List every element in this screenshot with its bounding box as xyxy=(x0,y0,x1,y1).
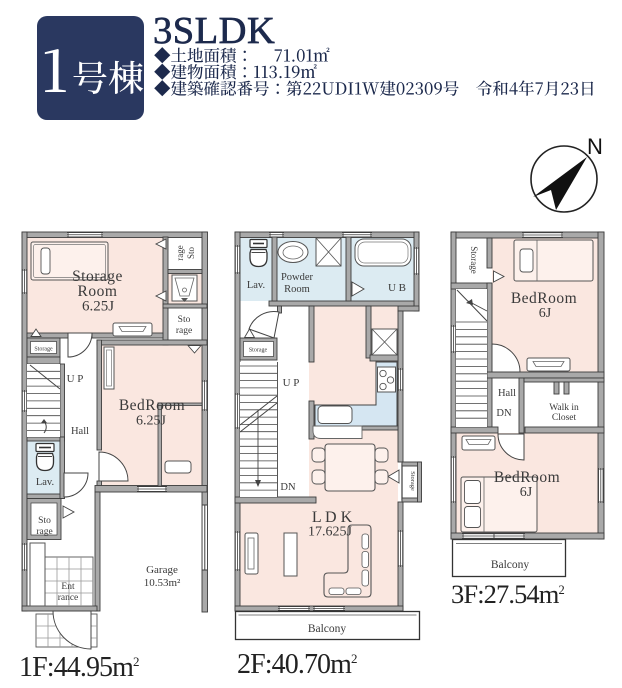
svg-text:Ent: Ent xyxy=(61,582,75,592)
svg-text:L D K: L D K xyxy=(312,509,353,526)
svg-text:6.25J: 6.25J xyxy=(136,414,167,429)
svg-text:Sto: Sto xyxy=(38,516,51,526)
svg-text:Hall: Hall xyxy=(498,388,516,399)
svg-text:Lav.: Lav. xyxy=(247,280,265,291)
svg-text:U P: U P xyxy=(67,373,84,385)
svg-text:Room: Room xyxy=(284,284,310,295)
svg-text:Closet: Closet xyxy=(552,413,577,423)
svg-text:Garage: Garage xyxy=(146,564,178,576)
svg-text:BedRoom: BedRoom xyxy=(119,397,185,414)
svg-text:Storage: Storage xyxy=(469,246,479,274)
svg-text:rage: rage xyxy=(36,527,52,537)
svg-text:DN: DN xyxy=(496,408,512,419)
svg-text:Storage: Storage xyxy=(34,347,53,353)
svg-text:Sto: Sto xyxy=(178,315,191,325)
svg-text:Balcony: Balcony xyxy=(491,559,530,571)
svg-text:10.53m²: 10.53m² xyxy=(144,577,181,589)
svg-text:U B: U B xyxy=(388,282,406,294)
svg-text:BedRoom: BedRoom xyxy=(511,290,577,307)
svg-text:6.25J: 6.25J xyxy=(82,299,114,315)
svg-text:rance: rance xyxy=(58,593,79,603)
svg-text:Room: Room xyxy=(78,283,118,300)
svg-text:rage: rage xyxy=(175,245,185,261)
svg-text:1F:44.95m2: 1F:44.95m2 xyxy=(19,652,139,683)
svg-text:Powder: Powder xyxy=(281,272,314,283)
svg-text:Walk in: Walk in xyxy=(549,403,579,413)
svg-text:Sto: Sto xyxy=(186,247,196,260)
svg-text:2F:40.70m2: 2F:40.70m2 xyxy=(237,649,357,680)
svg-text:Lav.: Lav. xyxy=(36,477,54,488)
svg-text:N: N xyxy=(587,134,603,159)
svg-text:Storage: Storage xyxy=(409,471,416,491)
svg-text:Storage: Storage xyxy=(249,348,268,354)
svg-text:rage: rage xyxy=(176,326,192,336)
svg-text:6J: 6J xyxy=(520,485,533,500)
svg-text:Balcony: Balcony xyxy=(308,623,347,635)
svg-text:DN: DN xyxy=(280,482,296,493)
svg-text:BedRoom: BedRoom xyxy=(494,469,560,486)
svg-text:3SLDK: 3SLDK xyxy=(153,10,275,52)
svg-text:17.625J: 17.625J xyxy=(308,525,353,540)
svg-text:3F:27.54m2: 3F:27.54m2 xyxy=(451,579,565,609)
svg-text:6J: 6J xyxy=(539,306,552,321)
svg-text:U P: U P xyxy=(283,377,300,389)
svg-text:Hall: Hall xyxy=(71,426,89,437)
